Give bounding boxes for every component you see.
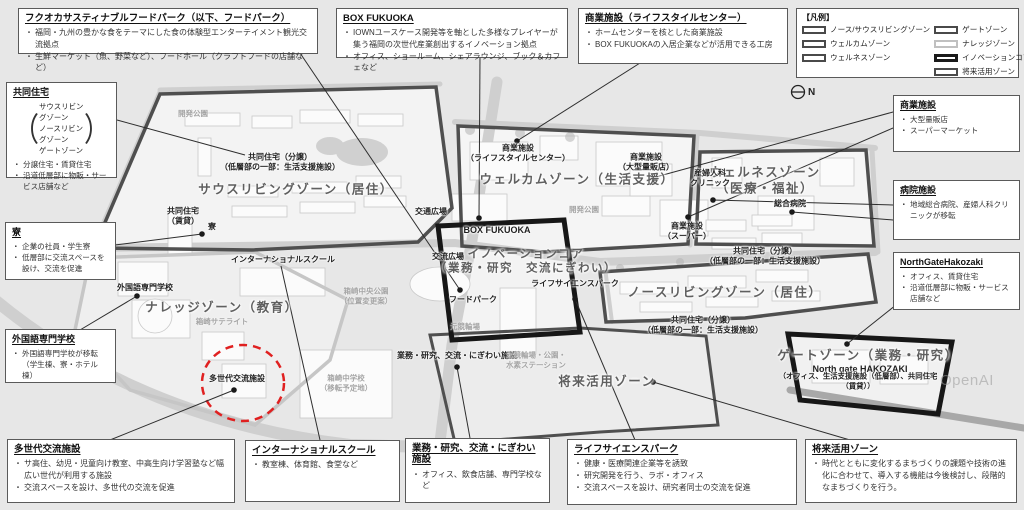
legend-item: イノベーションコア — [934, 52, 1024, 63]
zone-name: ノースリビングゾーン — [39, 123, 84, 145]
callout-bullet: 時代とともに変化するまちづくりの課題や技術の進化に合わせて、導入する機能は今後検… — [812, 458, 1010, 493]
callout-bullet: 外国語専門学校が移転（学生棟、寮・ホテル棟） — [12, 348, 109, 381]
callout-title: 業務・研究、交流・にぎわい施設 — [412, 443, 543, 466]
callout-bullet: 健康・医療関連企業等を誘致 — [574, 458, 790, 470]
legend-swatch — [934, 26, 958, 34]
callout-bullet: 沿道低層部に物販・サービス店舗など — [13, 170, 110, 192]
zone-name: サウスリビングゾーン — [39, 101, 84, 123]
legend-label: 将来活用ゾーン — [962, 66, 1015, 77]
north-compass: N — [790, 84, 815, 100]
legend-item: ウェルネスゾーン — [802, 52, 930, 63]
callout-bullet: スーパーマーケット — [900, 125, 1013, 136]
zoning-map-page: サウスリビングゾーン（居住） ウェルカムゾーン（生活支援） ウェルネスゾーン （… — [0, 0, 1024, 510]
callout-bullet: 研究開発を行う、ラボ・オフィス — [574, 470, 790, 482]
legend-item: ノース/サウスリビングゾーン — [802, 24, 930, 35]
legend-swatch — [934, 40, 958, 48]
callout-box-fukuoka: BOX FUKUOKA IOWNユースケース開発等を軸とした多様なプレイヤーが集… — [336, 8, 568, 58]
callout-bullet: 低層部に交流スペースを設け、交流を促進 — [12, 252, 109, 274]
legend: 【凡例】 ノース/サウスリビングゾーン ウェルカムゾーン ウェルネスゾーン ゲー… — [796, 8, 1019, 78]
legend-swatch — [802, 54, 826, 62]
callout-title: インターナショナルスクール — [252, 445, 393, 456]
callout-bullet: BOX FUKUOKAの入居企業などが活用できる工房 — [585, 39, 781, 51]
callout-bullet: オフィス、飲食店舗、専門学校など — [412, 469, 543, 492]
callout-bullet: 分譲住宅・賃貸住宅 — [13, 159, 110, 170]
legend-title: 【凡例】 — [802, 12, 1013, 23]
callout-bullet: 大型量販店 — [900, 114, 1013, 125]
compass-icon — [790, 84, 806, 100]
callout-bullet: IOWNユースケース開発等を軸とした多様なプレイヤーが集う福岡の次世代産業創出す… — [343, 27, 561, 50]
callout-title: ライフサイエンスパーク — [574, 444, 790, 455]
callout-title: フクオカサスティナブルフードパーク（以下、フードパーク） — [25, 13, 311, 24]
callout-title: 商業施設 — [900, 100, 1013, 111]
zone-paren-group: （ サウスリビングゾーン ノースリビングゾーン ゲートゾーン ） — [13, 101, 110, 157]
callout-title: NorthGateHakozaki — [900, 257, 1013, 268]
callout-bullet: 交流スペースを設け、多世代の交流を促進 — [14, 482, 228, 494]
callout-title: 将来活用ゾーン — [812, 444, 1010, 455]
callout-ryo: 寮 企業の社員・学生寮 低層部に交流スペースを設け、交流を促進 — [5, 222, 116, 280]
compass-n-label: N — [808, 87, 815, 98]
callout-bullet: 生鮮マーケット（魚、野菜など）、フードホール（クラフトフードの店舗など） — [25, 51, 311, 74]
callout-bullet: オフィス、ショールーム、シェアラウンジ、ブック＆カフェなど — [343, 51, 561, 74]
callout-title: 寮 — [12, 227, 109, 238]
callout-title: BOX FUKUOKA — [343, 13, 561, 24]
callout-tasedai: 多世代交流施設 サ高住、幼児・児童向け教室、中高生向け学習塾など幅広い世代が利用… — [7, 439, 235, 503]
legend-swatch — [934, 54, 958, 62]
callout-hospital: 病院施設 地域総合病院、産婦人科クリニックが移転 — [893, 180, 1020, 240]
callout-bullet: 沿道低層部に物販・サービス店舗など — [900, 282, 1013, 304]
legend-label: イノベーションコア — [962, 52, 1024, 63]
legend-item: ウェルカムゾーン — [802, 38, 930, 49]
legend-label: ウェルカムゾーン — [830, 38, 890, 49]
callout-food-park: フクオカサスティナブルフードパーク（以下、フードパーク） 福岡・九州の豊かな食を… — [18, 8, 318, 54]
legend-swatch — [934, 68, 958, 76]
watermark: OpenAI — [940, 372, 994, 389]
legend-item: ナレッジゾーン — [934, 38, 1024, 49]
legend-label: ノース/サウスリビングゾーン — [830, 24, 930, 35]
close-paren: ） — [84, 112, 110, 145]
callout-title: 共同住宅 — [13, 87, 110, 98]
callout-bullet: ホームセンターを核とした商業施設 — [585, 27, 781, 39]
callout-title: 外国語専門学校 — [12, 334, 109, 345]
callout-future-zone: 将来活用ゾーン 時代とともに変化するまちづくりの課題や技術の進化に合わせて、導入… — [805, 439, 1017, 503]
legend-item: 将来活用ゾーン — [934, 66, 1024, 77]
callout-bullet: 教室棟、体育館、食堂など — [252, 459, 393, 471]
callout-bullet: サ高住、幼児・児童向け教室、中高生向け学習塾など幅広い世代が利用する施設 — [14, 458, 228, 481]
callout-north-gate: NorthGateHakozaki オフィス、賃貸住宅 沿道低層部に物販・サービ… — [893, 252, 1020, 310]
callout-kyodo-jutaku: 共同住宅 （ サウスリビングゾーン ノースリビングゾーン ゲートゾーン ） 分譲… — [6, 82, 117, 178]
legend-label: ウェルネスゾーン — [830, 52, 890, 63]
open-paren: （ — [13, 112, 39, 145]
legend-swatch — [802, 26, 826, 34]
callout-bullet: 企業の社員・学生寮 — [12, 241, 109, 252]
callout-title: 商業施設（ライフスタイルセンター） — [585, 13, 781, 24]
legend-label: ゲートゾーン — [962, 24, 1007, 35]
callout-title: 病院施設 — [900, 185, 1013, 196]
legend-item: ゲートゾーン — [934, 24, 1024, 35]
callout-title: 多世代交流施設 — [14, 444, 228, 455]
callout-bullet: オフィス、賃貸住宅 — [900, 271, 1013, 282]
legend-swatch — [802, 40, 826, 48]
callout-gyomu: 業務・研究、交流・にぎわい施設 オフィス、飲食店舗、専門学校など — [405, 438, 550, 503]
callout-gaikokugo: 外国語専門学校 外国語専門学校が移転（学生棟、寮・ホテル棟） — [5, 329, 116, 383]
callout-bullet: 交流スペースを設け、研究者同士の交流を促進 — [574, 482, 790, 494]
callout-commercial-lifestyle: 商業施設（ライフスタイルセンター） ホームセンターを核とした商業施設 BOX F… — [578, 8, 788, 64]
callout-international-school: インターナショナルスクール 教室棟、体育館、食堂など — [245, 440, 400, 502]
zone-name: ゲートゾーン — [39, 145, 84, 156]
callout-bullet: 福岡・九州の豊かな食をテーマにした食の体験型エンターテイメント観光交流拠点 — [25, 27, 311, 50]
callout-bullet: 地域総合病院、産婦人科クリニックが移転 — [900, 199, 1013, 221]
legend-label: ナレッジゾーン — [962, 38, 1015, 49]
callout-commercial-right: 商業施設 大型量販店 スーパーマーケット — [893, 95, 1020, 152]
callout-life-science: ライフサイエンスパーク 健康・医療関連企業等を誘致 研究開発を行う、ラボ・オフィ… — [567, 439, 797, 505]
